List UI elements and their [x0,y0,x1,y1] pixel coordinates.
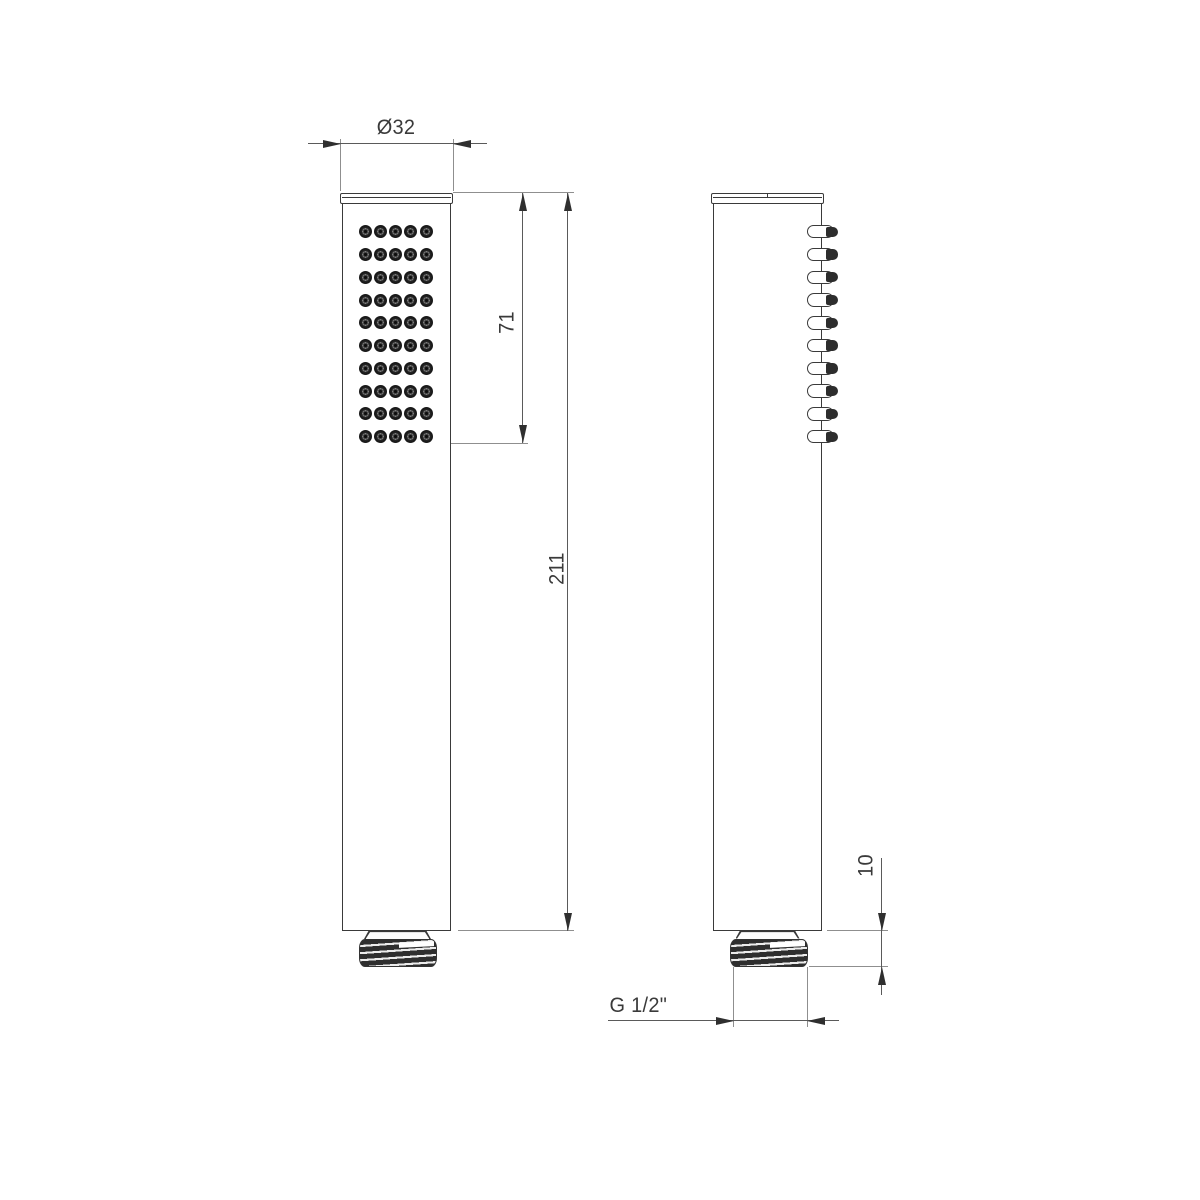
extension-line [458,930,574,931]
side-nozzle [807,362,838,376]
nozzle-tip [826,318,838,328]
nozzle-dot [359,339,372,352]
arrowhead-down [519,425,527,443]
nozzle-tip [826,340,838,350]
dimension-label-diameter: Ø32 [358,117,434,138]
side-nozzle [807,293,838,307]
nozzle-dot [420,225,433,238]
nozzle-dot [420,385,433,398]
front-view-handle-body [342,204,451,932]
side-nozzle [807,430,838,444]
nozzle-dot [389,362,402,375]
nozzle-dot [420,271,433,284]
nozzle-dot [404,294,417,307]
nozzle-dot [389,294,402,307]
nozzle-dot [420,407,433,420]
arrowhead-left [807,1017,825,1025]
thread-start-notch [399,941,434,948]
side-nozzle [807,384,838,398]
nozzle-dot [374,385,387,398]
nozzle-dot [374,271,387,284]
front-view-thread-collar [364,931,431,940]
front-cap-inner-line [342,197,451,198]
dimension-label-thread-spec: G 1/2" [610,995,705,1016]
arrowhead-right [323,140,341,148]
nozzle-tip [826,363,838,373]
nozzle-tip [826,409,838,419]
nozzle-dot [389,271,402,284]
nozzle-tip [826,386,838,396]
arrowhead-down [878,913,886,931]
front-view-head-cap [340,193,453,204]
nozzle-tip [826,249,838,259]
side-nozzle [807,248,838,262]
nozzle-dot [374,362,387,375]
arrowhead-down [564,913,572,931]
side-view-head-cap [711,193,824,204]
nozzle-tip [826,432,838,442]
side-nozzle [807,271,838,285]
nozzle-dot [359,225,372,238]
nozzle-dot [404,385,417,398]
nozzle-dot [374,248,387,261]
nozzle-dot [389,385,402,398]
dimension-label-total-length: 211 [546,540,567,597]
dimension-label-thread-length: 10 [856,837,877,894]
technical-drawing-canvas: Ø32 71 211 10 G 1/2" [0,0,1200,1200]
arrowhead-right [716,1017,734,1025]
nozzle-dot [359,248,372,261]
nozzle-dot [420,362,433,375]
dimension-label-spray-length: 71 [497,294,518,351]
side-nozzle [807,339,838,353]
dimension-line [522,193,523,443]
nozzle-dot [359,362,372,375]
side-view-thread-collar [736,931,800,939]
nozzle-dot [420,430,433,443]
arrowhead-up [564,193,572,211]
side-nozzle [807,316,838,330]
side-cap-center-tick [767,194,768,198]
side-view-thread [730,939,809,967]
nozzle-dot [359,294,372,307]
extension-line [809,966,888,967]
nozzle-dot [420,339,433,352]
nozzle-dot [359,385,372,398]
nozzle-dot [359,430,372,443]
nozzle-tip [826,295,838,305]
thread-start-notch [770,941,805,948]
nozzle-tip [826,227,838,237]
front-view-thread [359,939,437,967]
side-nozzle [807,225,838,239]
nozzle-dot [420,248,433,261]
arrowhead-up [519,193,527,211]
nozzle-dot [420,316,433,329]
nozzle-dot [359,271,372,284]
nozzle-tip [826,272,838,282]
nozzle-dot [374,294,387,307]
nozzle-dot [420,294,433,307]
extension-line [453,192,574,193]
arrowhead-left [453,140,471,148]
arrowhead-up [878,967,886,985]
nozzle-dot [374,339,387,352]
side-view-handle-body [713,204,822,932]
side-nozzle [807,407,838,421]
